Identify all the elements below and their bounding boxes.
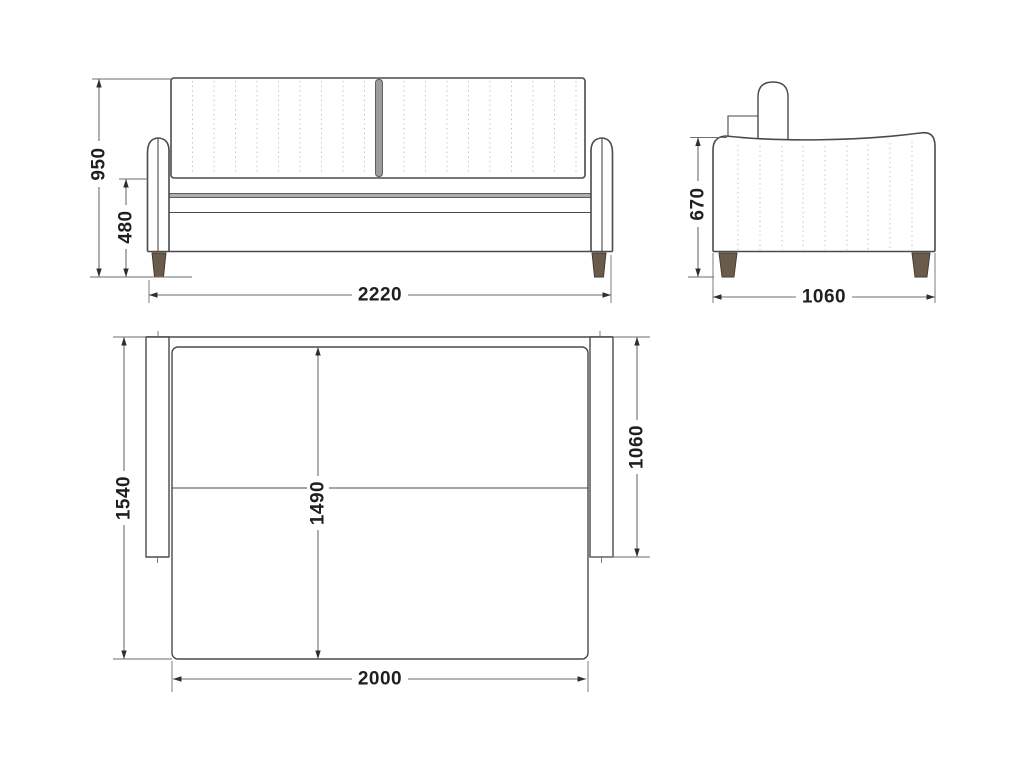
cushion-divider [376,80,383,177]
dim-sleeping-width-value: 2000 [358,669,402,690]
back-cushion-profile [758,82,788,141]
top-left-armrest [146,337,169,557]
backrest-profile [728,116,758,138]
dim-sleeping-width: 2000 [172,661,588,692]
dim-overall-depth: 1060 [713,253,935,308]
dim-unfolded-depth-value: 1540 [114,476,135,520]
dim-sleeping-length-value: 1490 [308,481,329,525]
top-view: 1540 1490 1060 2000 [113,331,650,692]
side-view: 670 1060 [687,82,935,308]
front-view: 950 480 2220 [88,78,613,306]
bed-outline [172,347,588,659]
dim-sofa-depth-value: 1060 [627,425,648,469]
dim-armrest-height-value: 670 [688,187,709,220]
top-right-armrest [590,337,613,557]
armrest-side-panel [713,133,935,252]
drawing-svg: 950 480 2220 [0,0,1024,768]
dim-overall-depth-value: 1060 [802,287,846,308]
dim-seat-height-value: 480 [116,210,137,243]
dim-overall-width: 2220 [149,255,611,306]
seat-frame-band [169,194,591,198]
sofa-dimension-drawing: 950 480 2220 [0,0,1024,768]
dim-seat-height: 480 [115,179,148,277]
dim-overall-height-value: 950 [89,147,110,180]
front-right-leg [592,253,606,277]
side-front-leg [719,253,737,277]
dim-overall-width-value: 2220 [358,285,402,306]
front-left-leg [152,253,166,277]
side-back-leg [912,253,930,277]
